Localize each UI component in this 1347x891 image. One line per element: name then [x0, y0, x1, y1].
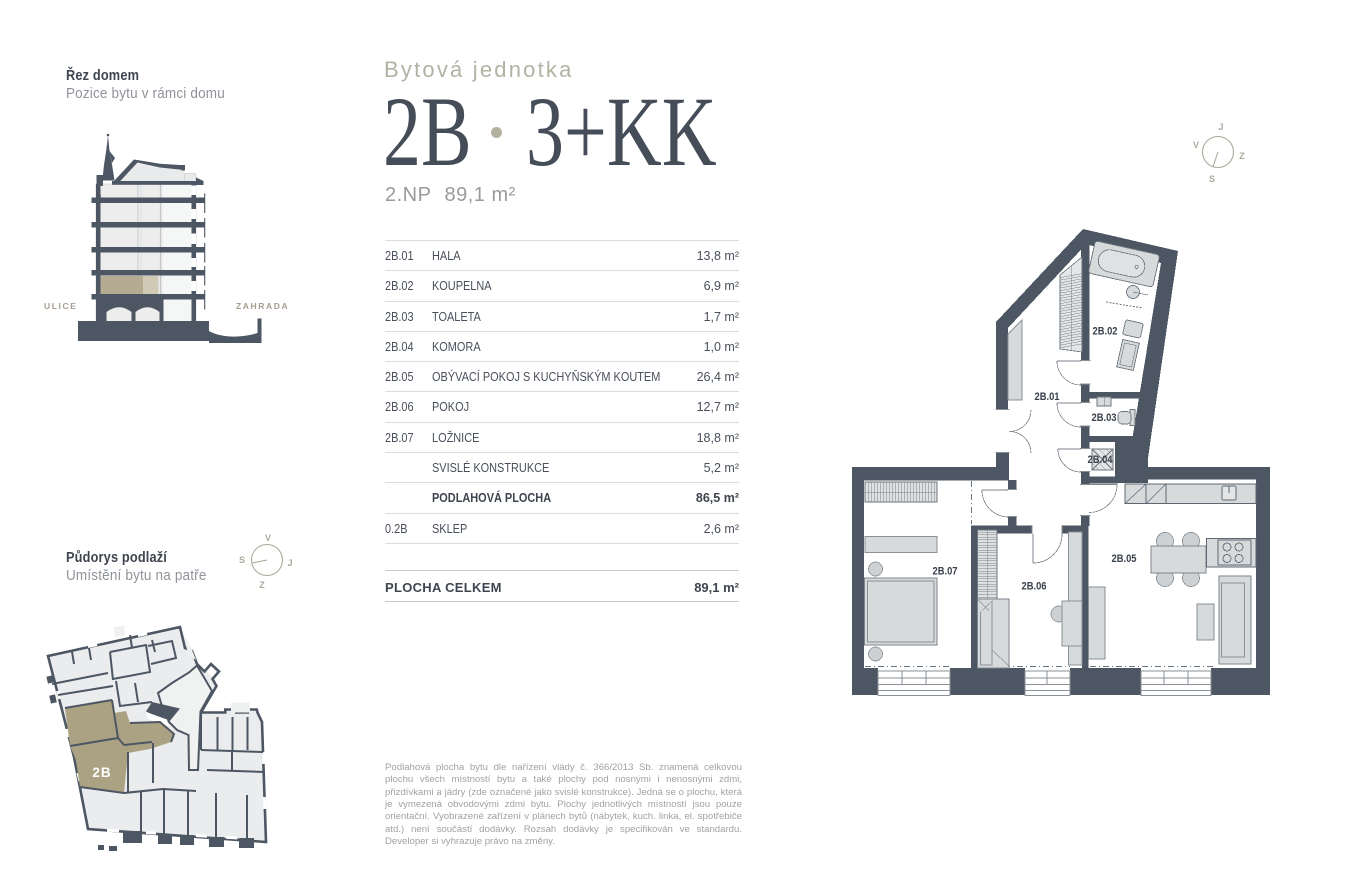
- svg-text:2B.07: 2B.07: [933, 566, 958, 578]
- svg-text:2B.05: 2B.05: [1112, 553, 1137, 565]
- svg-text:2B.03: 2B.03: [1092, 412, 1117, 424]
- svg-text:S: S: [239, 555, 245, 565]
- svg-text:2B.01: 2B.01: [1035, 391, 1060, 403]
- svg-text:2B.04: 2B.04: [1088, 454, 1114, 466]
- svg-text:2B.06: 2B.06: [1022, 581, 1047, 593]
- svg-text:J: J: [287, 558, 292, 568]
- svg-text:2B: 2B: [92, 765, 111, 780]
- svg-text:V: V: [265, 533, 271, 543]
- svg-text:Z: Z: [259, 580, 265, 590]
- svg-text:2B.02: 2B.02: [1093, 326, 1118, 338]
- svg-text:V: V: [1193, 140, 1199, 150]
- svg-text:J: J: [1218, 122, 1223, 132]
- svg-text:S: S: [1209, 174, 1215, 184]
- svg-text:Z: Z: [1239, 151, 1245, 161]
